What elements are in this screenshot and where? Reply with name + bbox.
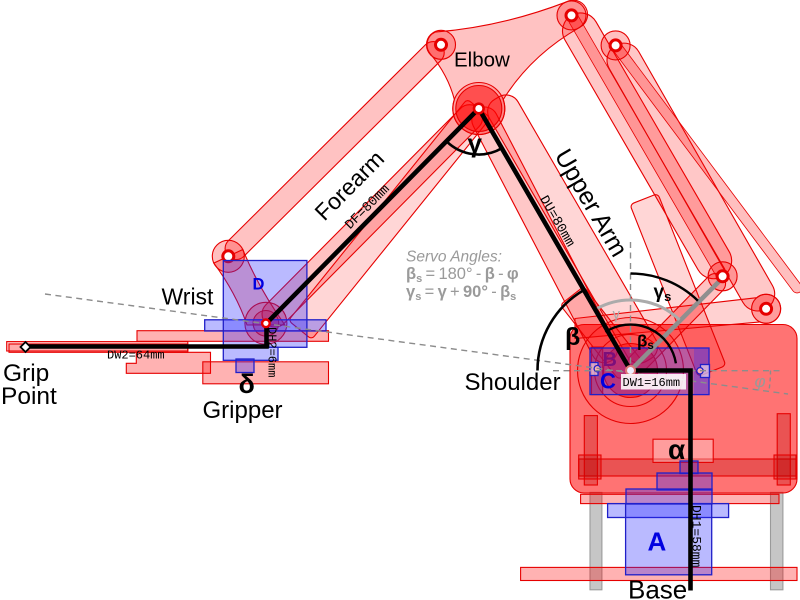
svg-text:Gripper: Gripper xyxy=(203,397,283,424)
svg-text:D: D xyxy=(253,276,265,294)
svg-text:Shoulder: Shoulder xyxy=(465,369,561,396)
svg-text:Wrist: Wrist xyxy=(162,284,215,310)
svg-text:α: α xyxy=(668,434,685,465)
svg-text:Servo Angles:: Servo Angles: xyxy=(406,249,502,266)
svg-text:Point: Point xyxy=(1,383,57,410)
svg-text:φ: φ xyxy=(755,372,766,391)
svg-text:Base: Base xyxy=(628,575,687,600)
svg-text:γ: γ xyxy=(468,128,483,158)
svg-text:γ: γ xyxy=(613,306,621,323)
svg-text:DW1=16mm: DW1=16mm xyxy=(623,376,681,390)
svg-text:C: C xyxy=(600,369,616,394)
svg-text:β: β xyxy=(565,323,580,351)
svg-text:DH1=58mm: DH1=58mm xyxy=(689,505,704,568)
svg-text:Elbow: Elbow xyxy=(454,49,510,72)
svg-text:δ: δ xyxy=(239,369,255,399)
svg-text:A: A xyxy=(648,527,667,557)
svg-text:DW2=64mm: DW2=64mm xyxy=(107,349,165,363)
svg-text:DH2=6mm: DH2=6mm xyxy=(265,327,279,377)
svg-text:βs = 180° - β - φ: βs = 180° - β - φ xyxy=(406,265,519,285)
svg-text:γs = γ + 90° - βs: γs = γ + 90° - βs xyxy=(406,283,516,303)
